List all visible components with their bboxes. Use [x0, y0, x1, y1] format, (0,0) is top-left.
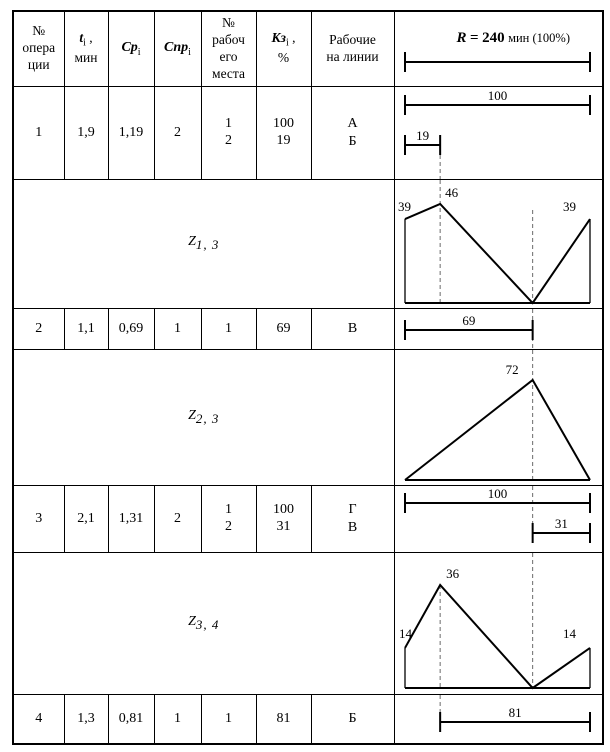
operation-row-4: 4 1,3 0,81 1 1 81 Б 81 [13, 694, 603, 744]
svg-text:100: 100 [487, 486, 507, 501]
op1-workers: А Б [311, 86, 394, 179]
z23-graph: 72 [394, 349, 603, 485]
svg-text:81: 81 [508, 705, 521, 720]
workplace-number: 1 [202, 116, 256, 133]
op3-kz: 100 31 [256, 485, 311, 552]
z23-label-cell: Z2, 3 [13, 349, 394, 485]
header-line: № [202, 15, 256, 32]
operation-row-2: 2 1,1 0,69 1 1 69 В 69 [13, 308, 603, 349]
svg-text:14: 14 [563, 625, 577, 640]
header-col-cp: Срi [108, 11, 154, 86]
workplace-number: 2 [202, 133, 256, 150]
takt-scale-cell: R = 240 мин (100%) [394, 11, 603, 86]
op2-t: 1,1 [64, 308, 108, 349]
svg-text:69: 69 [462, 313, 475, 328]
header-line: мин [65, 50, 108, 67]
header-col-t: ti , мин [64, 11, 108, 86]
svg-text:36: 36 [446, 566, 460, 581]
z13-label-cell: Z1, 3 [13, 179, 394, 308]
op4-workers: Б [311, 694, 394, 744]
header-line: % [257, 50, 311, 67]
op2-loading-chart: 69 [394, 308, 603, 349]
header-line: № [14, 23, 64, 40]
op4-loading-chart: 81 [394, 694, 603, 744]
op3-cp: 1,31 [108, 485, 154, 552]
op1-cnp: 2 [154, 86, 201, 179]
header-col-workplace-number: № рабоч его места [201, 11, 256, 86]
op2-number: 2 [13, 308, 64, 349]
header-col-kz: Кзi , % [256, 11, 311, 86]
header-line: Рабочие [312, 32, 394, 49]
takt-scale-label: R = 240 мин (100%) [395, 29, 603, 48]
header-line: на линии [312, 49, 394, 66]
op1-loading-chart: 10019 [394, 86, 603, 179]
operation-row-1: 1 1,9 1,19 2 1 2 100 19 А Б 10019 [13, 86, 603, 179]
z13-row: Z1, 3 394639 [13, 179, 603, 308]
op1-t: 1,9 [64, 86, 108, 179]
op1-kz: 100 19 [256, 86, 311, 179]
header-line: его [202, 49, 256, 66]
op3-number: 3 [13, 485, 64, 552]
header-col-operation-number: № опера ции [13, 11, 64, 86]
op2-kz: 69 [256, 308, 311, 349]
workplace-number: 2 [202, 519, 256, 536]
op2-workers: В [311, 308, 394, 349]
op4-cp: 0,81 [108, 694, 154, 744]
op1-workplaces: 1 2 [201, 86, 256, 179]
kz-value: 100 [257, 502, 311, 519]
worker-letter: Г [312, 501, 394, 519]
op3-loading-chart: 10031 [394, 485, 603, 552]
z23-row: Z2, 3 72 [13, 349, 603, 485]
worker-letter: В [312, 519, 394, 537]
z13-graph: 394639 [394, 179, 603, 308]
svg-text:19: 19 [416, 128, 429, 143]
header-line: ti , [65, 30, 108, 50]
op1-cp: 1,19 [108, 86, 154, 179]
op3-t: 2,1 [64, 485, 108, 552]
z34-row: Z3, 4 143614 [13, 552, 603, 694]
z34-label-cell: Z3, 4 [13, 552, 394, 694]
op1-number: 1 [13, 86, 64, 179]
kz-value: 31 [257, 519, 311, 536]
header-line: ции [14, 57, 64, 74]
header-line: опера [14, 40, 64, 57]
z34-graph: 143614 [394, 552, 603, 694]
op4-t: 1,3 [64, 694, 108, 744]
op3-cnp: 2 [154, 485, 201, 552]
op4-kz: 81 [256, 694, 311, 744]
header-col-cnp: Спрi [154, 11, 201, 86]
op3-workers: Г В [311, 485, 394, 552]
svg-text:72: 72 [505, 362, 518, 377]
op2-cp: 0,69 [108, 308, 154, 349]
op4-number: 4 [13, 694, 64, 744]
svg-text:31: 31 [554, 516, 567, 531]
op2-cnp: 1 [154, 308, 201, 349]
op3-workplaces: 1 2 [201, 485, 256, 552]
svg-text:14: 14 [399, 625, 413, 640]
kz-value: 19 [257, 133, 311, 150]
header-col-workers: Рабочие на линии [311, 11, 394, 86]
svg-text:39: 39 [398, 199, 411, 214]
op4-cnp: 1 [154, 694, 201, 744]
svg-text:100: 100 [487, 88, 507, 103]
header-line: Кзi , [257, 30, 311, 50]
kz-value: 100 [257, 116, 311, 133]
worker-letter: Б [312, 133, 394, 151]
header-line: места [202, 66, 256, 83]
worker-letter: А [312, 115, 394, 133]
svg-text:39: 39 [563, 199, 576, 214]
op2-workplaces: 1 [201, 308, 256, 349]
workplace-number: 1 [202, 502, 256, 519]
op4-workplaces: 1 [201, 694, 256, 744]
scanned-figure-page: № опера ции ti , мин Срi Спрi № рабоч ег… [0, 0, 610, 752]
operation-row-3: 3 2,1 1,31 2 1 2 100 31 Г В 10031 [13, 485, 603, 552]
header-row: № опера ции ti , мин Срi Спрi № рабоч ег… [13, 11, 603, 86]
svg-text:46: 46 [445, 185, 459, 200]
header-line: рабоч [202, 32, 256, 49]
line-balance-table: № опера ции ti , мин Срi Спрi № рабоч ег… [12, 10, 604, 745]
